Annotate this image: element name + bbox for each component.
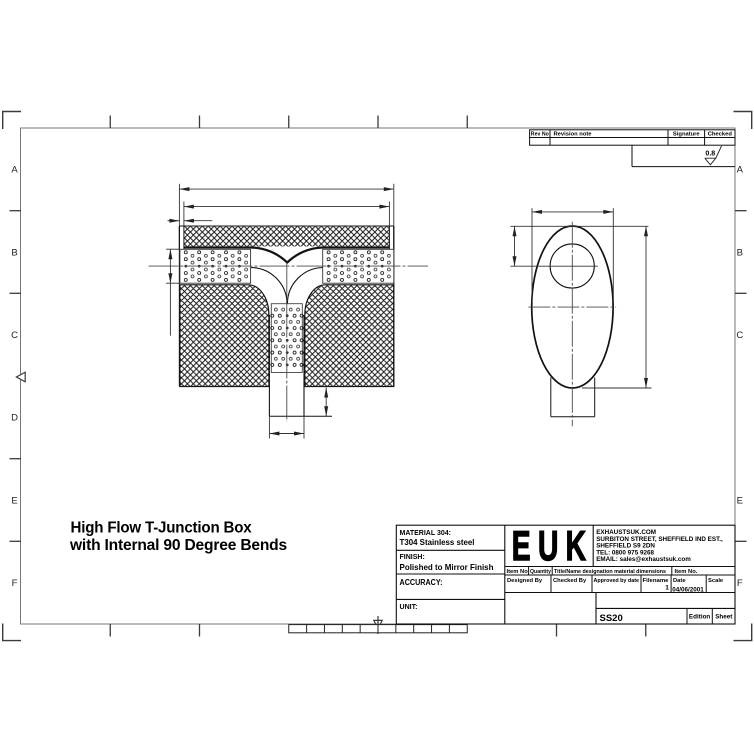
svg-text:Item No.: Item No. <box>675 569 698 575</box>
svg-text:Edition: Edition <box>689 613 710 620</box>
svg-text:SS20: SS20 <box>600 613 623 624</box>
svg-text:Date: Date <box>673 578 686 584</box>
svg-text:F: F <box>12 578 18 589</box>
svg-text:Revision note: Revision note <box>554 131 593 137</box>
svg-text:Rev No: Rev No <box>531 131 549 137</box>
svg-text:with Internal 90 Degree Bends: with Internal 90 Degree Bends <box>69 537 287 554</box>
svg-text:Sheet: Sheet <box>715 613 733 620</box>
svg-text:Approved by date: Approved by date <box>594 578 640 584</box>
svg-text:F: F <box>737 578 743 589</box>
svg-text:Scale: Scale <box>708 578 724 584</box>
svg-text:A: A <box>11 165 18 176</box>
svg-text:C: C <box>11 330 18 341</box>
svg-text:E: E <box>737 495 743 506</box>
svg-text:04/06/2001: 04/06/2001 <box>672 586 704 593</box>
svg-text:B: B <box>11 247 17 258</box>
svg-text:Filename: Filename <box>643 578 670 584</box>
svg-text:ACCURACY:: ACCURACY: <box>400 578 443 587</box>
svg-text:T304 Stainless steel: T304 Stainless steel <box>400 537 475 547</box>
svg-text:0.8: 0.8 <box>705 151 715 158</box>
svg-text:Quantity: Quantity <box>530 569 552 575</box>
svg-text:High Flow T-Junction Box: High Flow T-Junction Box <box>71 520 252 537</box>
svg-text:EUK: EUK <box>512 523 594 570</box>
svg-text:UNIT:: UNIT: <box>400 604 418 611</box>
svg-text:A: A <box>737 165 744 176</box>
svg-text:Checked: Checked <box>708 131 733 137</box>
svg-text:C: C <box>736 330 743 341</box>
svg-text:D: D <box>11 413 18 424</box>
svg-text:E: E <box>11 495 17 506</box>
svg-text:MATERIAL 304:: MATERIAL 304: <box>400 530 451 537</box>
svg-text:1: 1 <box>665 584 669 591</box>
svg-text:B: B <box>737 247 743 258</box>
svg-text:Title/Name designation materia: Title/Name designation material dimensio… <box>554 569 666 575</box>
svg-text:Checked By: Checked By <box>553 578 587 584</box>
svg-text:EMAIL: sales@exhaustsuk.com: EMAIL: sales@exhaustsuk.com <box>596 556 691 563</box>
svg-text:Designed By: Designed By <box>507 578 543 584</box>
svg-text:FINISH:: FINISH: <box>400 554 425 561</box>
svg-text:Polished to Mirror Finish: Polished to Mirror Finish <box>400 562 494 572</box>
svg-text:Signature: Signature <box>673 131 701 137</box>
svg-text:Item No: Item No <box>507 569 529 575</box>
